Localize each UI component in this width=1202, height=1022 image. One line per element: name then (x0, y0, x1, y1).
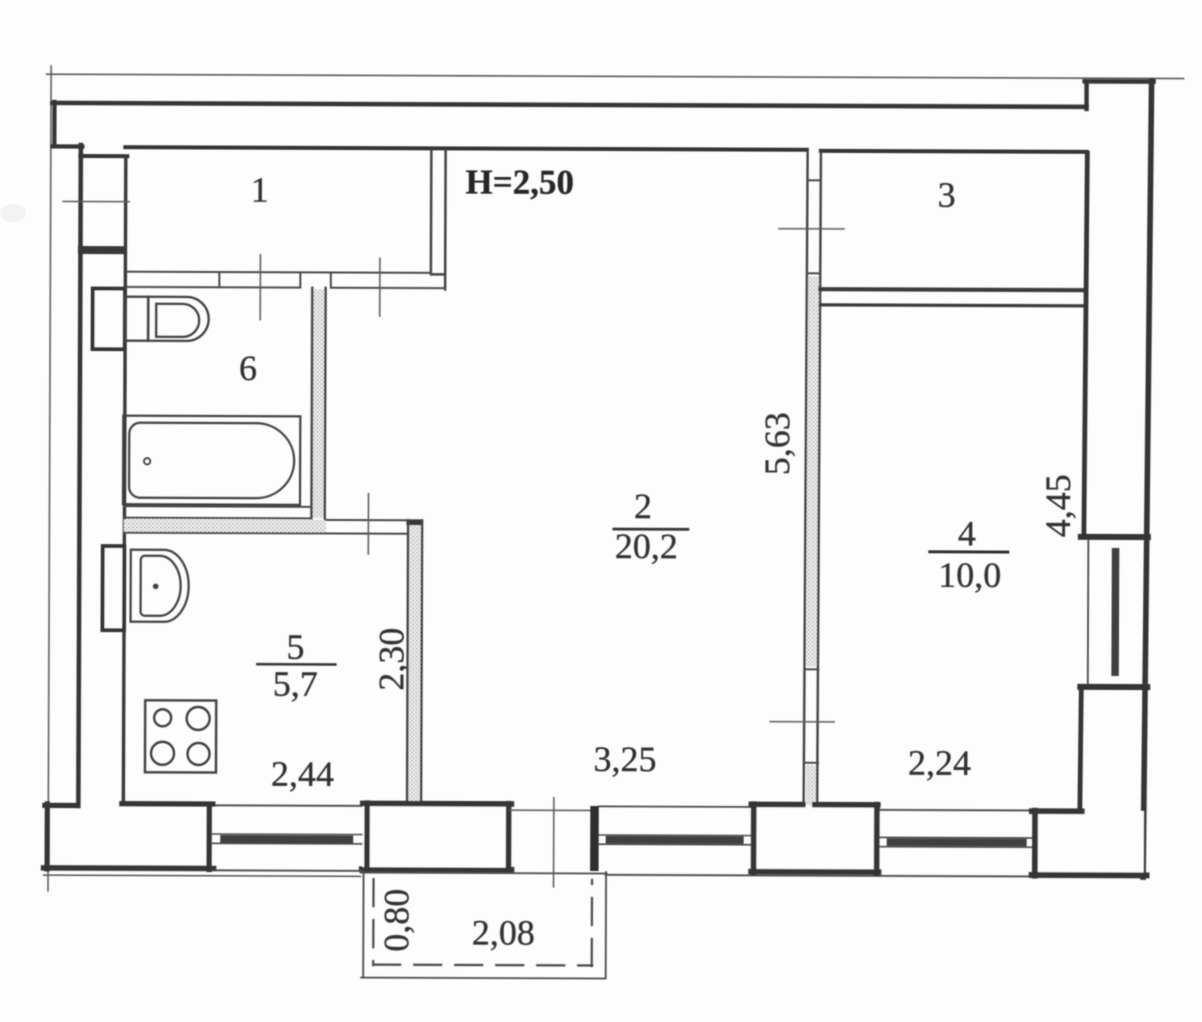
svg-text:4: 4 (958, 513, 976, 553)
svg-text:4,45: 4,45 (1038, 474, 1078, 537)
svg-text:H=2,50: H=2,50 (465, 162, 574, 201)
svg-text:2,24: 2,24 (908, 743, 971, 783)
svg-text:2,44: 2,44 (271, 754, 334, 794)
svg-text:2: 2 (634, 486, 652, 526)
svg-text:20,2: 20,2 (615, 526, 678, 566)
svg-text:0,80: 0,80 (376, 889, 416, 952)
svg-text:6: 6 (239, 348, 257, 388)
svg-text:3,25: 3,25 (593, 739, 656, 779)
svg-text:2,30: 2,30 (371, 628, 411, 691)
svg-text:5,63: 5,63 (757, 412, 797, 475)
svg-text:10,0: 10,0 (938, 555, 1001, 595)
svg-text:5: 5 (286, 627, 304, 667)
svg-text:1: 1 (251, 170, 269, 210)
svg-text:2,08: 2,08 (472, 913, 535, 953)
svg-text:3: 3 (938, 175, 956, 215)
svg-text:5,7: 5,7 (273, 664, 318, 704)
